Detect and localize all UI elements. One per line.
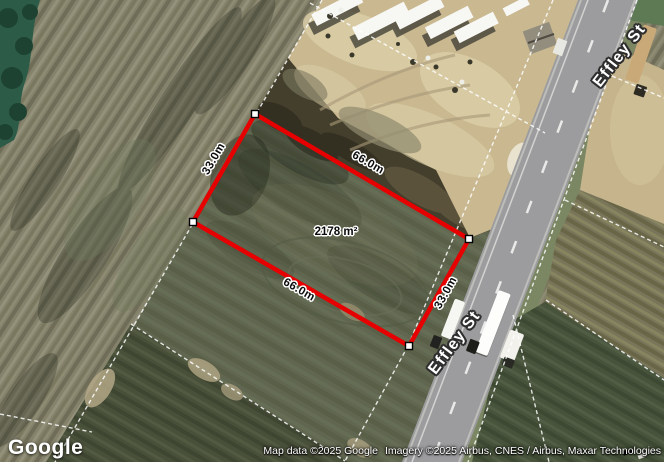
attribution-imagery: Imagery ©2025 Airbus, CNES / Airbus, Max…	[385, 445, 661, 457]
parcel-vertex-handle[interactable]	[252, 111, 259, 118]
attribution: Map data ©2025 GoogleImagery ©2025 Airbu…	[263, 445, 661, 457]
parcel-vertex-handle[interactable]	[190, 219, 197, 226]
attribution-map-data: Map data ©2025 Google	[263, 445, 378, 457]
map-canvas[interactable]: 33.0m 66.0m 66.0m 33.0m 2178 m² Effley S…	[0, 0, 664, 462]
google-logo[interactable]: Google	[8, 436, 83, 460]
parcel-vertex-handle[interactable]	[466, 236, 473, 243]
parcel-area-label: 2178 m²	[315, 226, 358, 238]
parcel-vertex-handle[interactable]	[406, 343, 413, 350]
